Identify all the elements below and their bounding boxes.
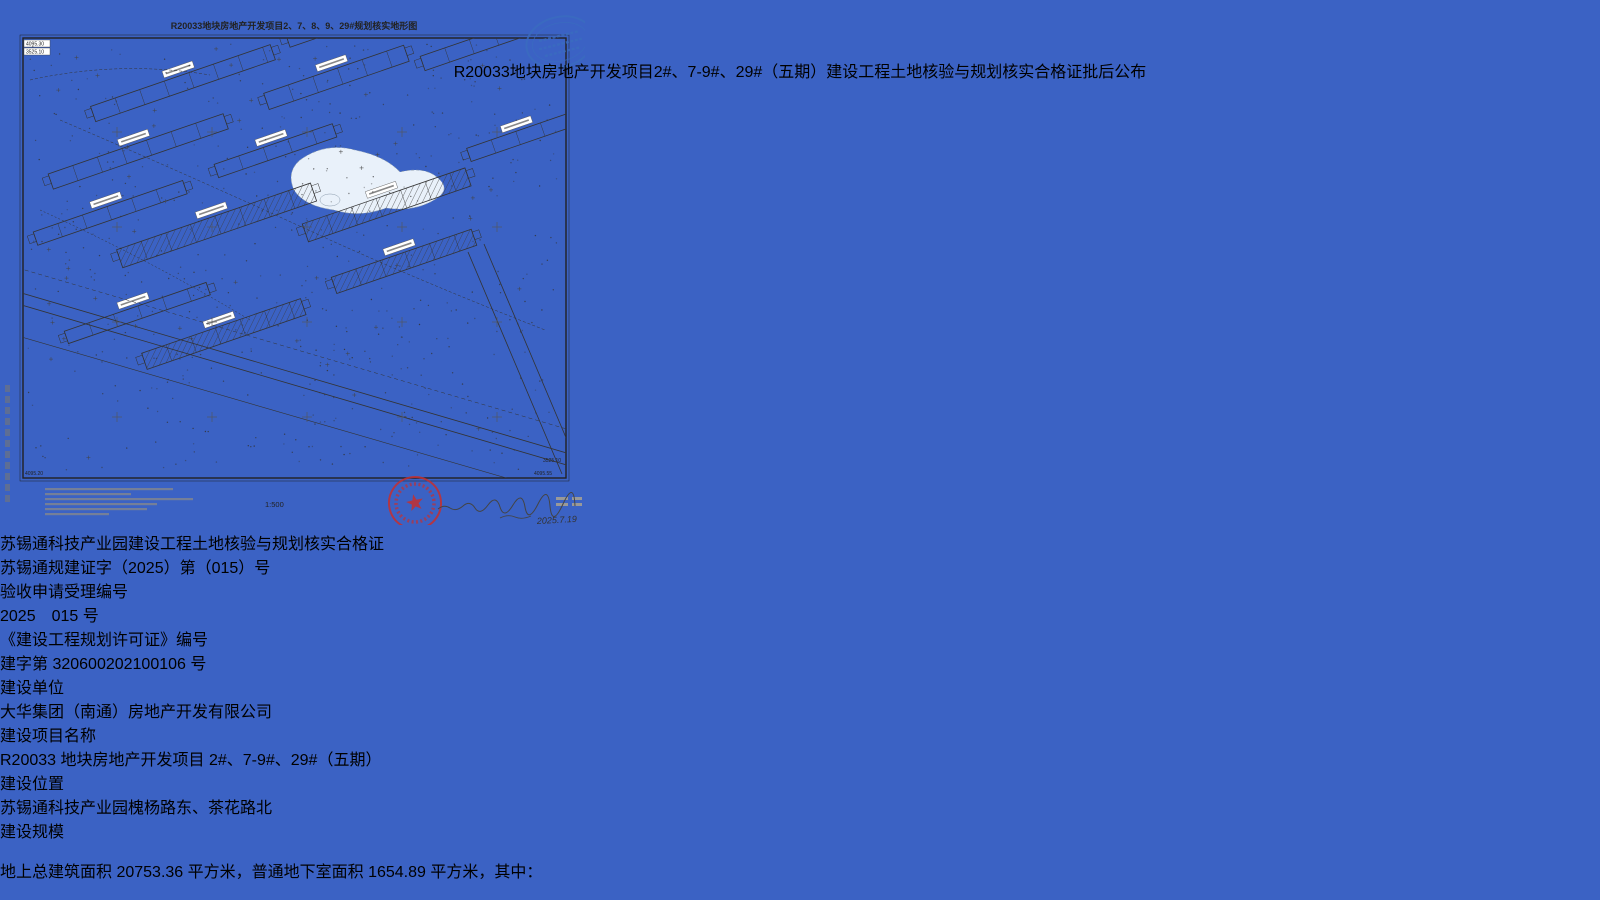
row-label-project-name: 建设项目名称	[0, 722, 1600, 746]
announcement-page: R20033地块房地产开发项目2#、7-9#、29#（五期）建设工程土地核验与规…	[0, 0, 1600, 900]
certificate-image[interactable]: 苏锡通科技产业园建设工程土地核验与规划核实合格证 苏锡通规建证字（2025）第（…	[0, 530, 1600, 900]
handwritten-date: 2025.7.19	[536, 514, 578, 525]
row-label-acceptance-no: 验收申请受理编号	[0, 578, 1600, 602]
svg-text:4095.55: 4095.55	[534, 471, 552, 477]
scale-paragraph: 地上总建筑面积 20753.36 平方米，普通地下室面积 1654.89 平方米…	[0, 858, 1600, 882]
certificate-number: 苏锡通规建证字（2025）第（015）号	[0, 554, 1600, 578]
row-label-permit-no: 《建设工程规划许可证》编号	[0, 626, 1600, 650]
map-notes	[45, 488, 193, 515]
map-title: R20033地块房地产开发项目2、7、8、9、29#规划核实地形图	[171, 20, 418, 31]
row-value-permit-no: 建字第 320600202100106 号	[0, 650, 1600, 674]
map-frame	[23, 38, 566, 478]
page-title: R20033地块房地产开发项目2#、7-9#、29#（五期）建设工程土地核验与规…	[0, 58, 1600, 82]
row-label-builder: 建设单位	[0, 674, 1600, 698]
map-frame-outer	[20, 35, 569, 481]
certificate-title: 苏锡通科技产业园建设工程土地核验与规划核实合格证	[0, 530, 1600, 554]
surveyor-strip	[5, 385, 10, 502]
map-corner-coordinates: 4095.30 3525.10 4095.20 4095.55 3525.10	[24, 40, 561, 477]
elevation-points	[28, 44, 558, 471]
row-value-acceptance-no: 2025 015 号	[0, 602, 1600, 626]
row-value-builder: 大华集团（南通）房地产开发有限公司	[0, 698, 1600, 722]
road-lines	[18, 69, 578, 482]
map-red-stamp	[384, 472, 446, 525]
certificate-table: 验收申请受理编号 2025 015 号 《建设工程规划许可证》编号 建字第 32…	[0, 578, 1600, 900]
map-scale: 1:500	[265, 500, 284, 509]
row-value-location: 苏锡通科技产业园槐杨路东、茶花路北	[0, 794, 1600, 818]
svg-text:3525.10: 3525.10	[26, 50, 44, 56]
row-label-location: 建设位置	[0, 770, 1600, 794]
row-value-scale: 地上总建筑面积 20753.36 平方米，普通地下室面积 1654.89 平方米…	[0, 858, 1600, 900]
svg-text:4095.30: 4095.30	[26, 42, 44, 48]
title-block-marks	[556, 497, 582, 506]
row-label-scale: 建设规模	[0, 818, 1600, 842]
row-value-project-name: R20033 地块房地产开发项目 2#、7-9#、29#（五期）	[0, 746, 1600, 770]
svg-text:4095.20: 4095.20	[25, 471, 43, 477]
